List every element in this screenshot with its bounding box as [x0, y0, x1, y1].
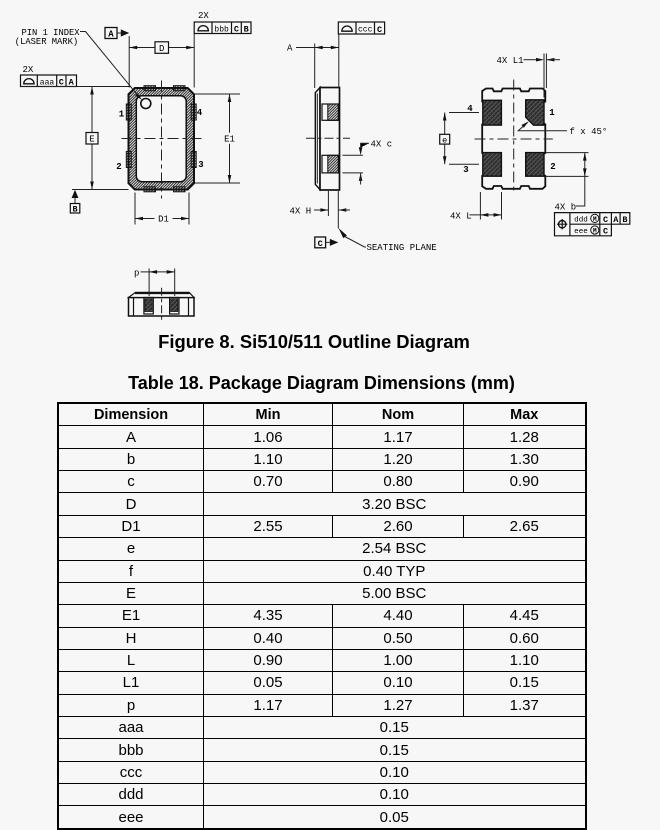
svg-text:C: C	[234, 25, 239, 35]
svg-text:3: 3	[463, 165, 468, 175]
svg-text:D1: D1	[158, 215, 169, 225]
svg-text:3: 3	[198, 160, 203, 170]
svg-text:C: C	[377, 25, 382, 35]
svg-text:A: A	[613, 215, 619, 225]
svg-text:E1: E1	[224, 135, 235, 145]
svg-text:4X H: 4X H	[290, 206, 312, 216]
svg-text:ccc: ccc	[358, 26, 373, 35]
svg-text:A: A	[108, 30, 114, 40]
svg-text:4X b: 4X b	[555, 203, 577, 213]
svg-text:eee: eee	[574, 228, 588, 236]
svg-text:C: C	[603, 227, 608, 237]
svg-text:p: p	[134, 268, 139, 278]
svg-text:C: C	[318, 239, 323, 249]
svg-text:1: 1	[549, 108, 555, 118]
svg-text:SEATING PLANE: SEATING PLANE	[367, 243, 437, 253]
svg-text:B: B	[244, 25, 249, 35]
svg-text:2X: 2X	[23, 65, 34, 75]
svg-text:1: 1	[119, 110, 125, 120]
svg-text:E: E	[89, 135, 94, 145]
svg-text:aaa: aaa	[40, 78, 55, 87]
svg-text:4: 4	[197, 108, 203, 118]
svg-text:(LASER MARK): (LASER MARK)	[15, 37, 78, 47]
svg-text:bbb: bbb	[214, 25, 229, 34]
svg-text:C: C	[603, 215, 608, 225]
svg-text:4X c: 4X c	[371, 140, 393, 150]
svg-text:A: A	[287, 44, 293, 54]
svg-text:e: e	[442, 135, 447, 145]
svg-text:D: D	[159, 44, 164, 54]
svg-text:4X L: 4X L	[450, 212, 472, 222]
svg-text:4X L1: 4X L1	[497, 56, 524, 66]
svg-text:2: 2	[116, 162, 121, 172]
svg-text:B: B	[622, 215, 627, 225]
svg-text:2: 2	[550, 162, 555, 172]
svg-text:M: M	[593, 228, 597, 235]
svg-text:B: B	[72, 204, 77, 214]
svg-text:2X: 2X	[198, 11, 209, 21]
svg-text:ddd: ddd	[574, 217, 588, 225]
svg-text:M: M	[593, 216, 597, 223]
svg-text:f x 45°: f x 45°	[570, 127, 608, 137]
